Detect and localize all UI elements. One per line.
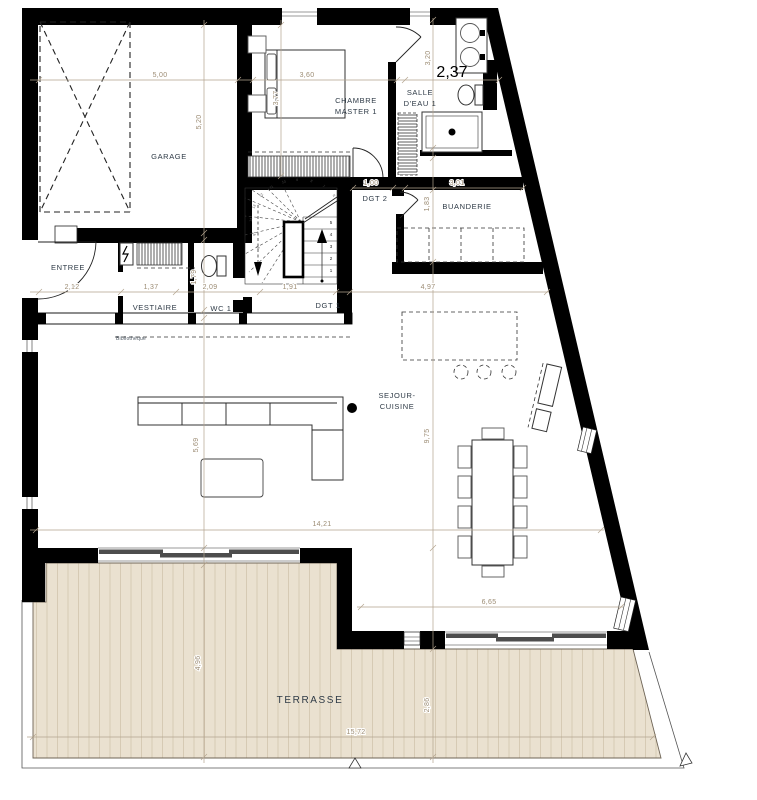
- sofa: [138, 397, 343, 480]
- stair-void: [284, 222, 303, 277]
- dim-bath-width: 2,37: [436, 64, 467, 81]
- toilet-wc1: [202, 256, 227, 277]
- dim-vestiaire-width: 1,37: [144, 284, 159, 291]
- dim-bath-height: 3,20: [425, 51, 432, 66]
- electrical-panel: [120, 243, 133, 265]
- chair: [458, 476, 471, 498]
- wall-niche: [55, 226, 77, 243]
- step-number: 4: [330, 232, 333, 237]
- bar-stool: [454, 365, 468, 379]
- bibliotheque-unit: [38, 313, 352, 337]
- dining-set: [458, 428, 527, 577]
- towel-radiator: [398, 113, 417, 175]
- stair-direction-arrow-icon: [317, 229, 327, 243]
- step-number: 2: [330, 256, 333, 261]
- label-chambre-2: MASTER 1: [335, 107, 377, 116]
- floor-plan-canvas: 5,00 3,60 2,37 5,20 3,77 3,20 1,00 3,01 …: [0, 0, 757, 800]
- dim-laundry-height: 1,83: [424, 197, 431, 212]
- dim-living-height: 5,69: [193, 438, 200, 453]
- label-dgt1: DGT 1: [316, 301, 341, 310]
- closet: [137, 243, 195, 268]
- bath-west-wall: [388, 62, 396, 177]
- bathroom-door: [396, 27, 421, 62]
- bedroom-door: [353, 148, 383, 177]
- label-chambre-1: CHAMBRE: [335, 96, 377, 105]
- dim-overall-width: 14,21: [312, 521, 331, 528]
- label-bibliotheque: Bibliothèque: [116, 336, 146, 342]
- label-dgt2: DGT 2: [363, 194, 388, 203]
- label-salle-1: SALLE: [407, 88, 433, 97]
- dim-lower-width: 6,65: [482, 599, 497, 606]
- step-number: 1: [330, 268, 333, 273]
- faucet-icon: [480, 30, 485, 36]
- nightstand: [248, 36, 266, 53]
- dim-garage-height: 5,20: [196, 115, 203, 130]
- faucet-icon: [480, 54, 485, 60]
- dim-wc-height: 1,79: [191, 270, 198, 285]
- dim-dgt2-width: 1,00: [364, 180, 379, 187]
- sliding-glass-door: [98, 548, 300, 561]
- dim-laundry-width: 3,01: [450, 180, 465, 187]
- wardrobe: [248, 152, 352, 177]
- sideboard: [528, 363, 562, 432]
- winder-number: 16: [255, 245, 260, 250]
- label-terrasse: TERRASSE: [277, 695, 344, 706]
- label-sejour-2: CUISINE: [380, 402, 415, 411]
- coffee-table: [201, 459, 263, 497]
- dim-bedroom-width: 3,60: [300, 72, 315, 79]
- dim-garage-width: 5,00: [153, 72, 168, 79]
- label-entree: ENTREE: [51, 263, 85, 272]
- nightstand: [248, 95, 266, 112]
- chair: [482, 566, 504, 577]
- chair: [458, 506, 471, 528]
- chair: [482, 428, 504, 439]
- step-number: 3: [330, 244, 333, 249]
- chair: [458, 536, 471, 558]
- dim-terrace-height: 4,96: [195, 656, 202, 671]
- pillow: [267, 54, 276, 80]
- parking-space: [40, 22, 130, 212]
- bar-stool: [477, 365, 491, 379]
- chair: [514, 476, 527, 498]
- step-number: 5: [330, 220, 333, 225]
- window: [404, 632, 420, 645]
- dim-bedroom-height: 3,77: [273, 91, 280, 106]
- winder-number: 10: [282, 180, 287, 185]
- label-wc1: WC 1: [210, 304, 231, 313]
- dim-wc-width: 2,09: [203, 284, 218, 291]
- dim-terrace-right-height: 2,86: [424, 698, 431, 713]
- chair: [514, 446, 527, 468]
- dim-dgt1-width: 1,91: [283, 284, 298, 291]
- dim-terrace-width: 15,72: [346, 729, 365, 736]
- dining-table: [472, 440, 513, 565]
- stair-direction-arrow-icon: [254, 262, 262, 276]
- dim-sejour-height: 9,75: [424, 429, 431, 444]
- chair: [458, 446, 471, 468]
- chair: [514, 506, 527, 528]
- laundry-appliances: [397, 228, 524, 262]
- winder-number: 6: [332, 194, 336, 198]
- winder-number: 13: [251, 204, 256, 209]
- label-garage: GARAGE: [151, 152, 187, 161]
- bar-stool: [502, 365, 516, 379]
- winder-number: 15: [252, 232, 257, 237]
- dim-sejour-width: 4,97: [421, 284, 436, 291]
- label-vestiaire: VESTIAIRE: [133, 303, 178, 312]
- doors: [38, 27, 421, 299]
- label-sejour-1: SEJOUR-: [378, 391, 415, 400]
- kitchen-island: [402, 312, 517, 379]
- toilet-bathroom: [458, 85, 483, 105]
- staircase: [245, 188, 337, 284]
- shower: [422, 112, 482, 152]
- shower-drain-icon: [449, 129, 456, 136]
- label-salle-2: D'EAU 1: [404, 99, 437, 108]
- garage-east-wall: [237, 25, 252, 243]
- bed: [248, 36, 345, 118]
- chair: [514, 536, 527, 558]
- structural-column-icon: [347, 403, 357, 413]
- dim-entry-width: 2,12: [65, 284, 80, 291]
- boundary-marker-icon: [349, 758, 361, 768]
- winder-number: 14: [249, 218, 254, 222]
- label-buanderie: BUANDERIE: [442, 202, 491, 211]
- floor-plan-drawing: 5,00 3,60 2,37 5,20 3,77 3,20 1,00 3,01 …: [0, 0, 757, 800]
